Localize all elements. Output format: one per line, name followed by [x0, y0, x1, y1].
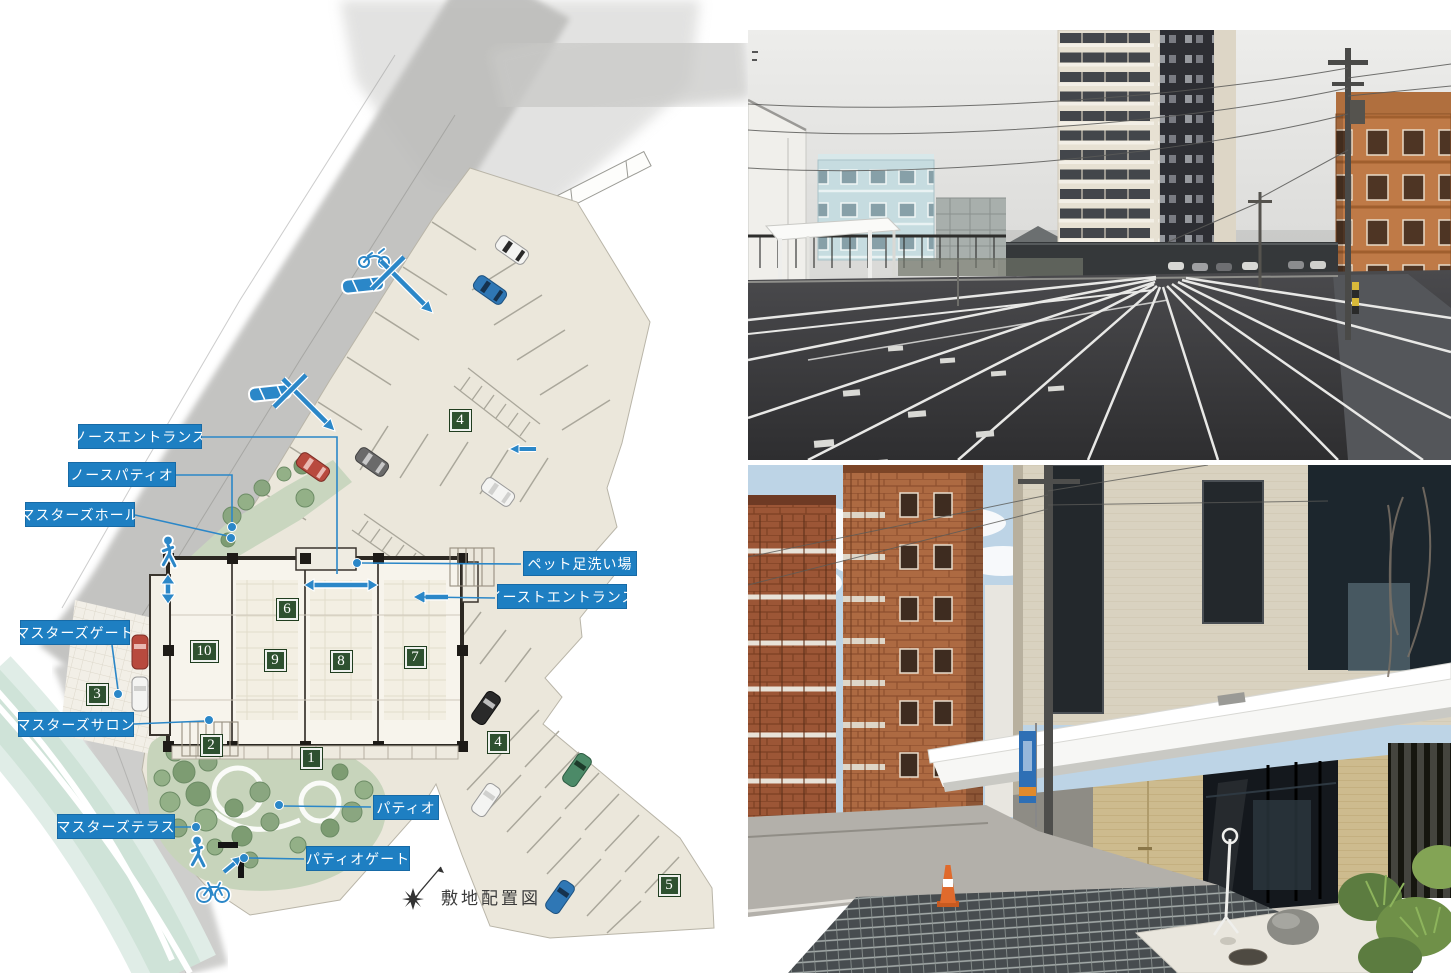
- white-building: [748, 100, 806, 286]
- number-marker-5: 5: [658, 874, 681, 897]
- parking-lot-photo: [748, 30, 1451, 460]
- hedge: [898, 258, 1083, 276]
- callout-masters-terrace: マスターズテラス: [57, 814, 175, 839]
- callout-masters-gate: マスターズゲート: [20, 620, 130, 645]
- plan-caption: 敷地配置図: [441, 884, 541, 909]
- scaffold-building: [936, 198, 1006, 260]
- number-marker-2: 2: [200, 734, 223, 757]
- callout-east-entrance: イーストエントランス: [497, 584, 627, 609]
- manhole-cover: [1229, 949, 1267, 965]
- brick-building-far: [748, 495, 836, 835]
- number-marker-9: 9: [264, 649, 287, 672]
- number-marker-4: 4: [449, 409, 472, 432]
- number-marker-8: 8: [330, 650, 353, 673]
- callout-north-entrance: ノースエントランス: [78, 424, 202, 449]
- number-marker-1: 1: [300, 747, 323, 770]
- number-marker-7: 7: [404, 646, 427, 669]
- callout-patio-gate: パティオゲート: [306, 846, 410, 871]
- site-plan: ノースエントランスノースパティオマスターズホールマスターズゲートマスターズサロン…: [0, 0, 748, 973]
- callout-pet-foot-wash: ペット足洗い場: [523, 551, 637, 576]
- callout-patio: パティオ: [373, 795, 439, 820]
- number-marker-10: 10: [190, 640, 219, 663]
- number-marker-3: 3: [86, 683, 109, 706]
- callout-north-patio: ノースパティオ: [68, 462, 176, 487]
- callout-masters-hall: マスターズホール: [25, 502, 135, 527]
- callout-masters-salon: マスターズサロン: [18, 712, 134, 737]
- window-band: [1048, 465, 1103, 713]
- number-marker-4: 4: [487, 731, 510, 754]
- entrance-photo: [748, 465, 1451, 973]
- number-marker-6: 6: [276, 598, 299, 621]
